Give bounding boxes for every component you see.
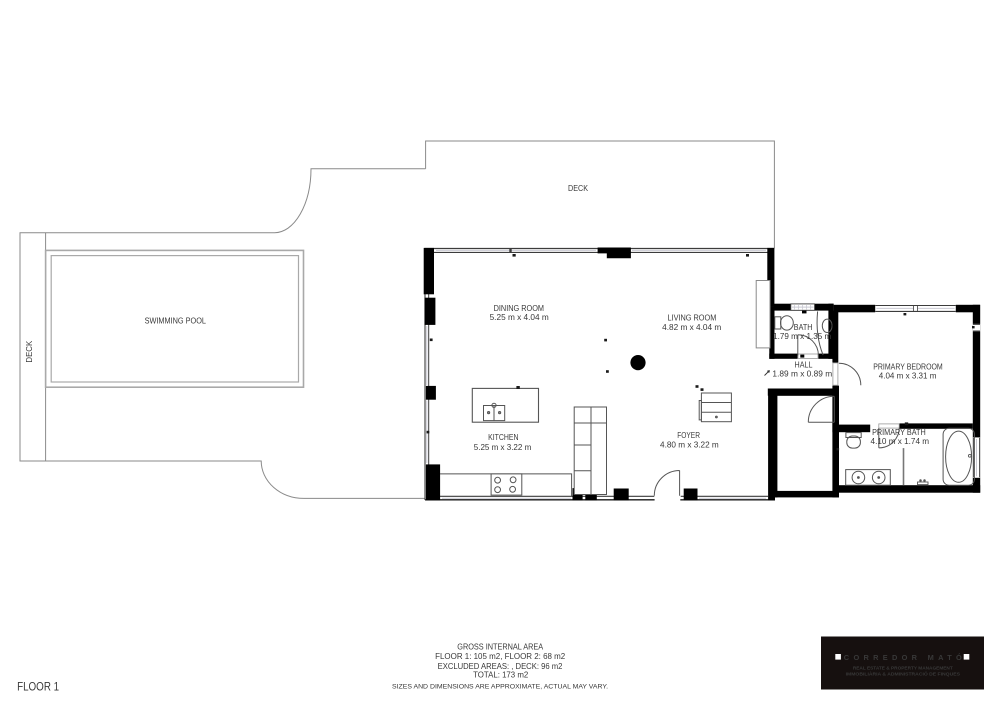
svg-text:IMMOBILIÀRIA & ADMINISTRACIÓ D: IMMOBILIÀRIA & ADMINISTRACIÓ DE FINQUES (846, 669, 960, 676)
svg-text:DECK: DECK (568, 184, 589, 193)
svg-text:GROSS INTERNAL AREA: GROSS INTERNAL AREA (457, 642, 543, 651)
svg-text:4.82 m x 4.04 m: 4.82 m x 4.04 m (662, 323, 722, 332)
svg-text:LIVING ROOM: LIVING ROOM (668, 313, 717, 322)
svg-text:REAL ESTATE & PROPERTY MANAGEM: REAL ESTATE & PROPERTY MANAGEMENT (853, 665, 953, 670)
svg-text:PRIMARY BATH: PRIMARY BATH (872, 428, 926, 437)
svg-text:1.89 m x 0.89 m: 1.89 m x 0.89 m (772, 370, 832, 379)
svg-text:DINING ROOM: DINING ROOM (494, 304, 544, 313)
svg-text:SIZES AND DIMENSIONS ARE APPRO: SIZES AND DIMENSIONS ARE APPROXIMATE, AC… (392, 683, 608, 690)
svg-text:FLOOR 1: 105 m2, FLOOR 2: 68 m: FLOOR 1: 105 m2, FLOOR 2: 68 m2 (435, 652, 566, 661)
svg-text:DECK: DECK (25, 340, 34, 363)
svg-text:BATH: BATH (794, 323, 813, 332)
svg-text:SWIMMING POOL: SWIMMING POOL (145, 317, 207, 326)
svg-text:4.04 m x 3.31 m: 4.04 m x 3.31 m (879, 372, 937, 381)
svg-text:FLOOR 1: FLOOR 1 (17, 680, 59, 693)
svg-text:KITCHEN: KITCHEN (488, 433, 519, 442)
svg-text:TOTAL: 173 m2: TOTAL: 173 m2 (473, 670, 529, 679)
svg-text:PRIMARY BEDROOM: PRIMARY BEDROOM (873, 362, 943, 371)
svg-text:5.25 m x 4.04 m: 5.25 m x 4.04 m (490, 313, 550, 322)
svg-text:HALL: HALL (795, 361, 813, 370)
svg-text:4.80 m x 3.22 m: 4.80 m x 3.22 m (660, 441, 719, 450)
svg-text:5.25 m x 3.22 m: 5.25 m x 3.22 m (474, 443, 532, 452)
svg-text:FOYER: FOYER (677, 431, 700, 440)
svg-text:4.10 m x 1.74 m: 4.10 m x 1.74 m (871, 437, 930, 446)
svg-text:1.79 m x 1.35 m: 1.79 m x 1.35 m (773, 332, 831, 341)
